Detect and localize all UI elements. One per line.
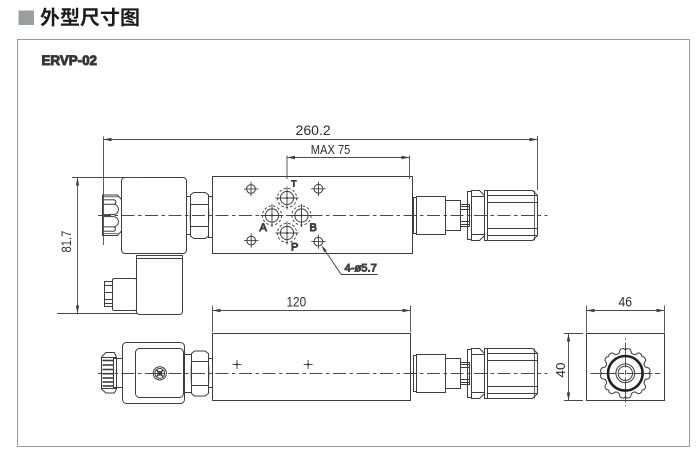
svg-text:120: 120 (287, 294, 307, 310)
svg-text:81.7: 81.7 (59, 231, 74, 253)
svg-text:40: 40 (553, 363, 568, 378)
svg-text:ERVP-02: ERVP-02 (42, 53, 98, 68)
svg-text:MAX 75: MAX 75 (311, 142, 351, 157)
svg-text:A: A (260, 222, 268, 234)
svg-text:260.2: 260.2 (296, 122, 331, 138)
svg-text:B: B (310, 222, 317, 234)
svg-text:46: 46 (619, 294, 633, 310)
svg-text:T: T (291, 179, 296, 189)
svg-text:4-ø5.7: 4-ø5.7 (345, 263, 377, 275)
svg-text:P: P (291, 242, 298, 254)
